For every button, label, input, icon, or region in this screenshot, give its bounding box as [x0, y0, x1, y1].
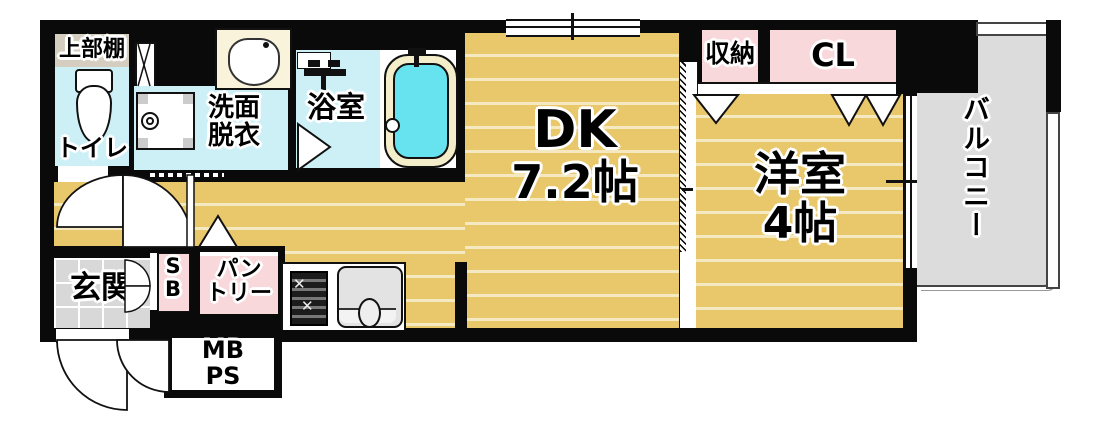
western-label-line2: 4帖 [700, 200, 900, 248]
western-label-line1: 洋室 [700, 150, 900, 200]
shoebox-label: S B [155, 255, 191, 300]
shower-bar [304, 69, 346, 76]
stove-icon: ✕ ✕ [290, 271, 328, 326]
balcony-right-wall-block [1046, 20, 1061, 112]
dk-label-line2: 7.2帖 [470, 158, 680, 208]
duct-icon [135, 42, 156, 92]
pantry-label: パン トリー [196, 258, 282, 306]
dk-label-line1: DK [470, 102, 680, 158]
shoebox-label-line2: B [155, 278, 191, 301]
sliding-door-hatch [680, 62, 686, 252]
pan-corner [138, 138, 148, 148]
kitchen-sink-icon [337, 266, 403, 328]
balcony-label: バルコニー [938, 82, 988, 252]
washbasin-faucet-dot [263, 42, 269, 48]
storage-label: 収納 [694, 40, 766, 67]
washbasin-bowl [228, 38, 280, 86]
sink-faucet [358, 298, 381, 328]
window-dk-tick [571, 13, 574, 40]
entrance-label: 玄関 [54, 272, 148, 305]
bathtub-faucet-stem [414, 54, 419, 67]
bathtub-handle [385, 118, 400, 133]
stove-burner: ✕ [301, 297, 314, 315]
washroom-label-line1: 洗面 [182, 94, 286, 122]
western-room-label: 洋室 4帖 [700, 150, 900, 247]
floor-plan: 上部棚 トイレ 洗面 脱衣 浴室 DK [0, 0, 1110, 430]
entrance-door-swing-outer [57, 340, 127, 410]
mbps-label-line1: MB [172, 338, 274, 364]
shower-stem [321, 76, 326, 90]
entrance-door-opening [56, 329, 129, 343]
stove-burner: ✕ [293, 275, 306, 293]
pantry-label-line1: パン [196, 258, 282, 282]
closet-label: CL [776, 38, 890, 73]
pan-drain [141, 112, 159, 130]
upper-shelf-label: 上部棚 [50, 38, 134, 62]
toilet-icon [73, 69, 111, 141]
bathtub-water [393, 63, 449, 159]
balcony-right-rail [1046, 112, 1060, 289]
toilet-door-gap [58, 166, 108, 182]
washroom-label-line2: 脱衣 [182, 122, 286, 150]
pan-drain-inner [146, 117, 154, 125]
washbasin-icon [215, 28, 292, 90]
kitchen-wall-stub [455, 262, 467, 328]
shoebox-label-line1: S [155, 255, 191, 278]
dk-label: DK 7.2帖 [470, 102, 680, 208]
entrance-door-swing-inner [117, 340, 169, 392]
pantry-label-line2: トリー [196, 282, 282, 306]
balcony-top-rail [976, 22, 1054, 36]
sliding-door-handle [682, 188, 693, 191]
pan-corner [138, 94, 148, 104]
bathroom-label: 浴室 [294, 92, 378, 123]
shower-knob [308, 60, 320, 67]
mbps-label: MB PS [172, 338, 274, 390]
washroom-label: 洗面 脱衣 [182, 94, 286, 150]
shower-knob [328, 60, 340, 67]
mbps-label-line2: PS [172, 364, 274, 390]
toilet-label: トイレ [48, 136, 136, 162]
